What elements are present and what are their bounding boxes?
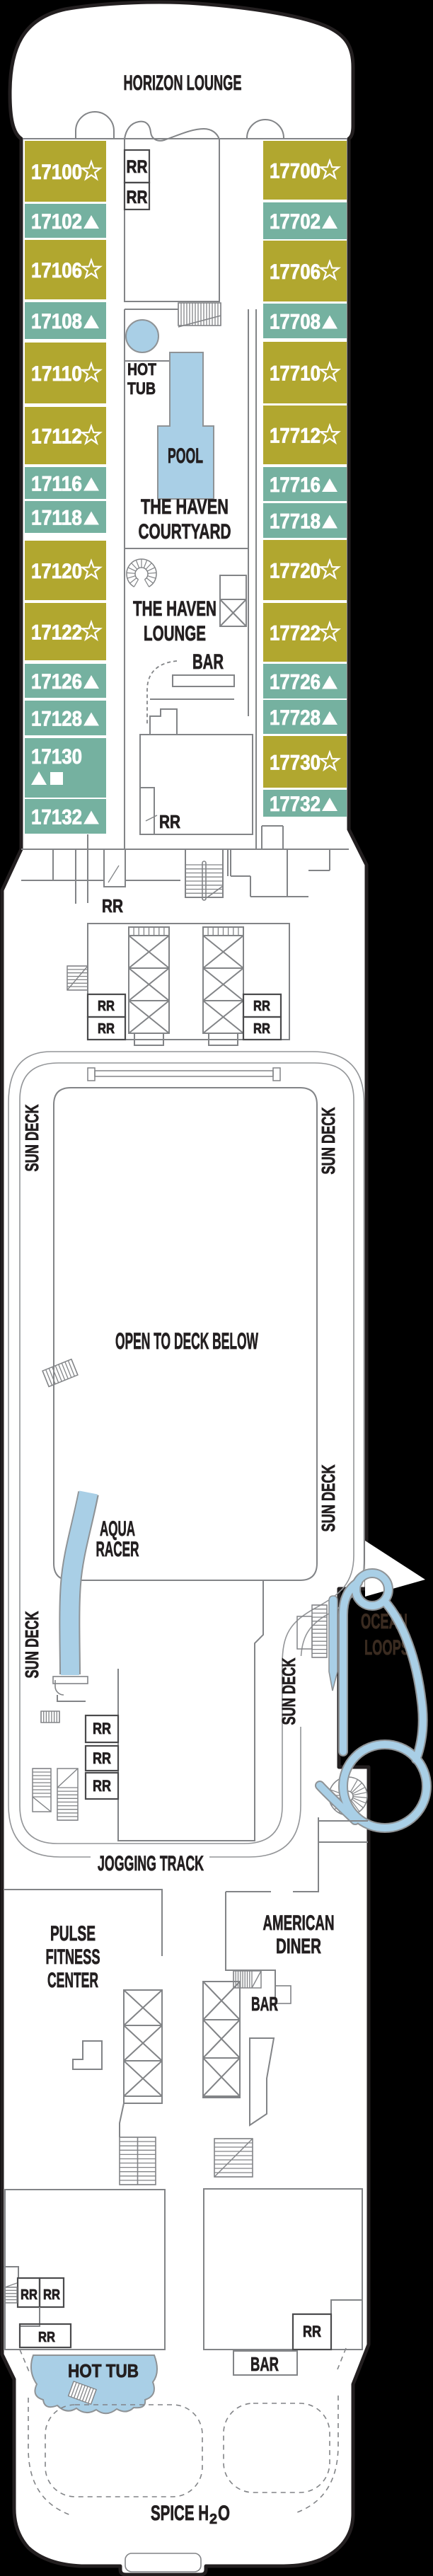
- svg-text:SUN DECK: SUN DECK: [21, 1611, 42, 1678]
- svg-text:17108: 17108: [31, 310, 82, 333]
- svg-text:RR: RR: [43, 2287, 60, 2303]
- svg-text:17118: 17118: [31, 507, 82, 530]
- svg-text:17128: 17128: [31, 708, 82, 731]
- svg-text:SUN DECK: SUN DECK: [21, 1104, 42, 1171]
- svg-text:17700: 17700: [270, 160, 321, 183]
- svg-text:17702: 17702: [270, 210, 321, 234]
- svg-text:2: 2: [209, 2512, 217, 2527]
- svg-text:17116: 17116: [31, 473, 82, 496]
- svg-text:17110: 17110: [31, 362, 82, 386]
- svg-text:RR: RR: [303, 2323, 321, 2340]
- svg-text:HORIZON LOUNGE: HORIZON LOUNGE: [124, 71, 242, 95]
- svg-text:17728: 17728: [270, 706, 321, 730]
- svg-text:BAR: BAR: [250, 2353, 279, 2375]
- svg-text:COURTYARD: COURTYARD: [139, 520, 231, 544]
- svg-text:CENTER: CENTER: [47, 1969, 98, 1992]
- svg-text:17100: 17100: [31, 161, 82, 184]
- svg-text:17712: 17712: [270, 425, 321, 448]
- svg-text:17130: 17130: [31, 745, 82, 769]
- svg-text:HOT: HOT: [127, 360, 156, 379]
- svg-text:17126: 17126: [31, 670, 82, 694]
- svg-text:RR: RR: [253, 999, 270, 1014]
- svg-text:RR: RR: [93, 1720, 111, 1737]
- svg-text:SUN DECK: SUN DECK: [318, 1464, 339, 1531]
- svg-text:THE HAVEN: THE HAVEN: [133, 597, 216, 621]
- svg-text:17722: 17722: [270, 622, 321, 645]
- svg-text:BAR: BAR: [251, 1993, 278, 2015]
- svg-text:FITNESS: FITNESS: [46, 1945, 100, 1969]
- svg-text:RR: RR: [159, 811, 180, 832]
- svg-text:RR: RR: [98, 999, 115, 1014]
- svg-text:17122: 17122: [31, 621, 82, 645]
- svg-text:AMERICAN: AMERICAN: [263, 1911, 335, 1935]
- svg-text:RR: RR: [127, 188, 148, 207]
- svg-text:DINER: DINER: [276, 1935, 321, 1958]
- svg-text:17132: 17132: [31, 806, 82, 829]
- svg-text:17120: 17120: [31, 560, 82, 583]
- svg-text:RR: RR: [21, 2287, 37, 2303]
- svg-text:17726: 17726: [270, 671, 321, 694]
- svg-text:LOUNGE: LOUNGE: [144, 622, 206, 645]
- svg-text:17716: 17716: [270, 473, 321, 497]
- svg-text:17102: 17102: [31, 210, 82, 234]
- svg-text:17730: 17730: [270, 752, 321, 775]
- svg-text:POOL: POOL: [168, 444, 203, 468]
- svg-text:17706: 17706: [270, 260, 321, 284]
- svg-text:TUB: TUB: [127, 379, 156, 398]
- svg-text:PULSE: PULSE: [50, 1922, 96, 1945]
- svg-text:17718: 17718: [270, 510, 321, 534]
- svg-text:RR: RR: [38, 2330, 55, 2345]
- svg-text:THE HAVEN: THE HAVEN: [141, 495, 229, 519]
- svg-text:RR: RR: [102, 895, 123, 916]
- svg-text:17112: 17112: [31, 425, 82, 449]
- svg-text:17720: 17720: [270, 560, 321, 583]
- svg-text:17708: 17708: [270, 311, 321, 334]
- svg-text:17710: 17710: [270, 362, 321, 386]
- svg-text:17732: 17732: [270, 793, 321, 816]
- svg-text:RACER: RACER: [96, 1538, 139, 1561]
- svg-text:RR: RR: [98, 1021, 115, 1037]
- svg-text:RR: RR: [253, 1021, 270, 1037]
- svg-text:BAR: BAR: [192, 650, 224, 674]
- svg-text:RR: RR: [93, 1749, 111, 1767]
- svg-text:SUN DECK: SUN DECK: [278, 1657, 299, 1725]
- svg-text:OPEN TO DECK BELOW: OPEN TO DECK BELOW: [115, 1328, 258, 1354]
- svg-text:SUN DECK: SUN DECK: [318, 1107, 339, 1174]
- svg-text:17106: 17106: [31, 259, 82, 282]
- svg-text:HOT TUB: HOT TUB: [68, 2360, 139, 2381]
- svg-text:RR: RR: [93, 1777, 111, 1795]
- svg-text:O: O: [218, 2502, 230, 2525]
- svg-text:RR: RR: [127, 157, 148, 177]
- svg-text:SPICE H: SPICE H: [151, 2502, 209, 2525]
- svg-text:JOGGING TRACK: JOGGING TRACK: [98, 1852, 204, 1875]
